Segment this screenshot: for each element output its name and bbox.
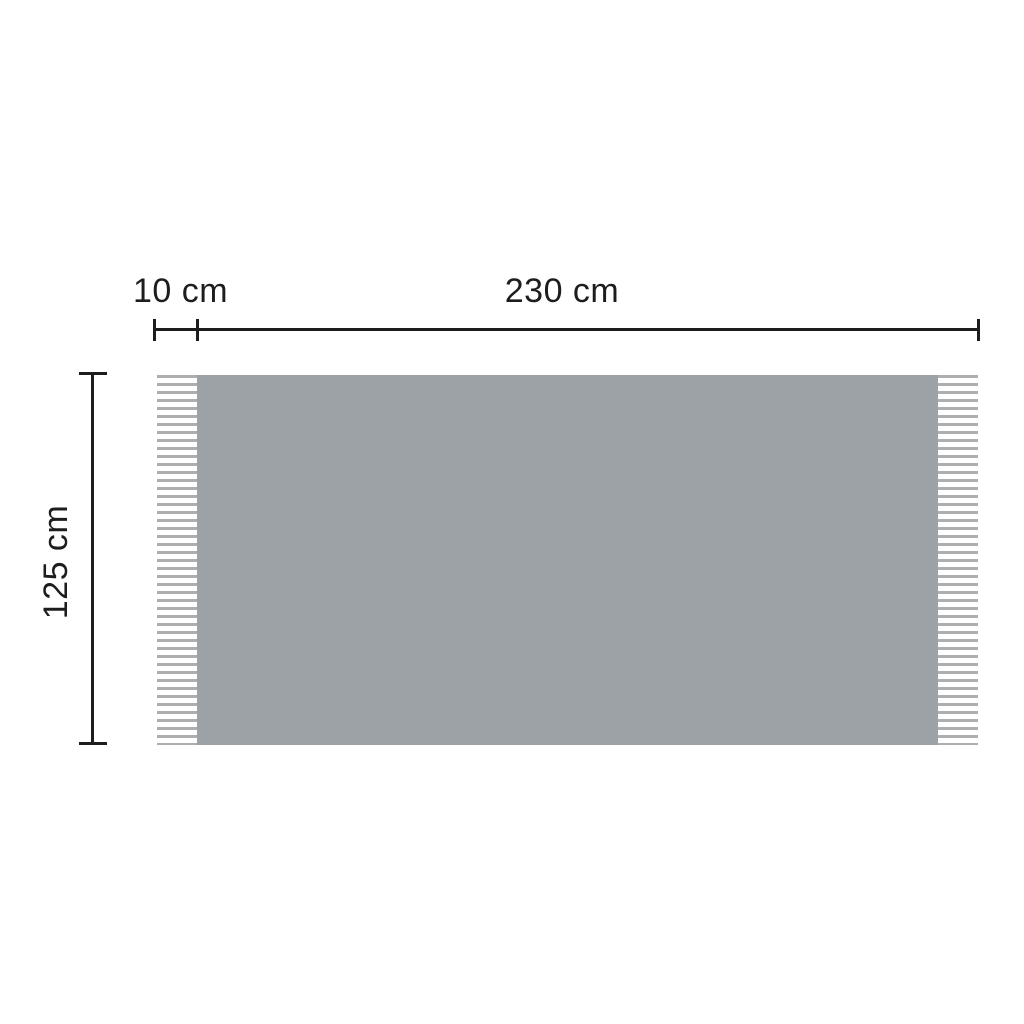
- blanket-fringe-right: [938, 375, 978, 745]
- blanket-illustration: [157, 375, 978, 745]
- dimension-cap-bottom: [79, 742, 107, 745]
- fringe-width-label: 10 cm: [133, 274, 228, 308]
- height-label: 125 cm: [39, 505, 73, 620]
- horizontal-dimension-line: [153, 319, 980, 341]
- dimension-cap-top: [79, 372, 107, 375]
- dimension-tick-fringe-boundary: [196, 319, 199, 341]
- body-width-label: 230 cm: [505, 274, 620, 308]
- blanket-body: [197, 375, 938, 745]
- dimension-tick-left: [153, 319, 156, 341]
- vertical-dimension-rule: [91, 372, 94, 745]
- vertical-dimension-line: [79, 372, 107, 745]
- dimension-diagram: 10 cm 230 cm 125 cm: [0, 0, 1024, 1024]
- horizontal-dimension-rule: [153, 328, 980, 331]
- dimension-tick-right: [977, 319, 980, 341]
- blanket-fringe-left: [157, 375, 197, 745]
